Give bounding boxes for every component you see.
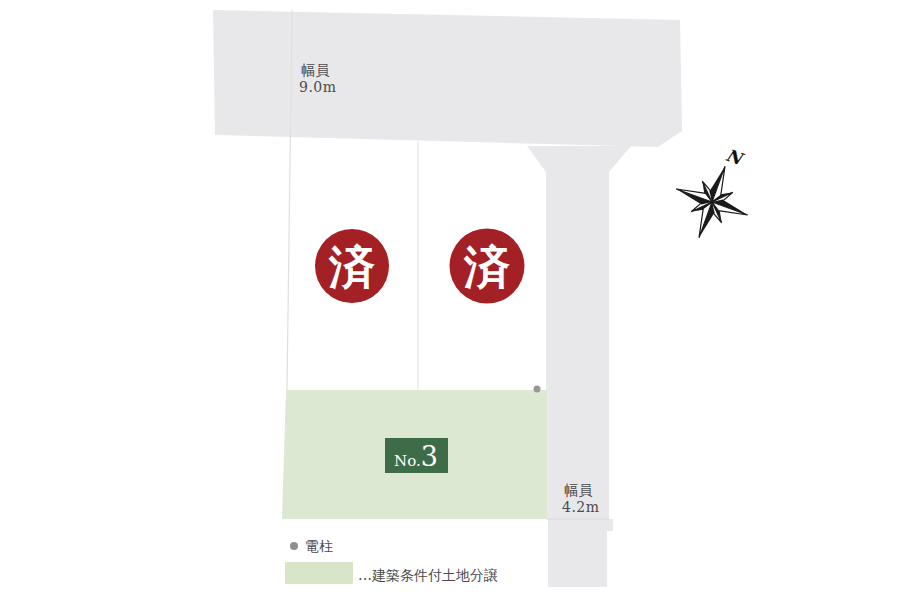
legend-pole-dot-icon	[290, 542, 298, 550]
utility-pole-marker	[534, 386, 541, 393]
plot-number-prefix: No.	[394, 452, 421, 470]
plot-number-value: 3	[421, 441, 438, 472]
compass-rose-icon: N	[663, 133, 768, 251]
top-road-width-value: 9.0m	[299, 79, 337, 95]
right-road-lower	[548, 519, 613, 587]
side-road-width-value: 4.2m	[562, 499, 600, 515]
land-subdivision-plan: No.3 済 済 幅員 9.0m 幅員 4.2m	[0, 0, 900, 600]
legend-swatch-label: …建築条件付土地分譲	[358, 567, 498, 583]
legend-pole-label: 電柱	[305, 538, 333, 554]
top-road-width-label: 幅員	[301, 62, 330, 78]
legend: 電柱 …建築条件付土地分譲	[285, 538, 498, 584]
site-plan-drawing: No.3 済 済 幅員 9.0m 幅員 4.2m	[0, 0, 900, 600]
top-road	[213, 10, 682, 147]
compass-north-label: N	[723, 145, 747, 170]
legend-swatch	[285, 562, 353, 584]
sold-stamp-text-1: 済	[328, 240, 375, 294]
side-road-width-label: 幅員	[564, 482, 593, 498]
sold-stamp-text-2: 済	[463, 240, 510, 294]
